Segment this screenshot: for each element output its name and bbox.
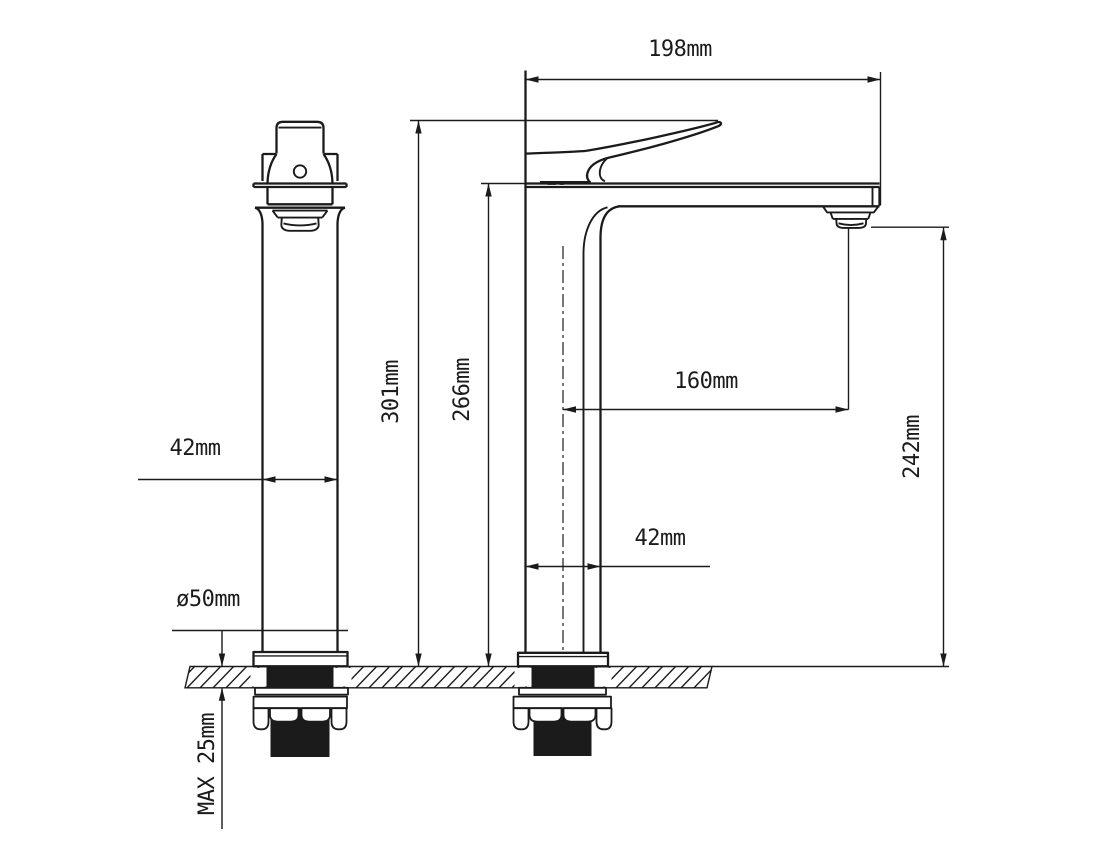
dimension-outlet-height: 242mm	[712, 227, 949, 666]
handle-knob-outline	[277, 122, 324, 154]
dim-label-42mm-front: 42mm	[635, 526, 686, 551]
mounting-nut-band-side	[254, 697, 348, 709]
nut-facet-b-side	[302, 708, 331, 721]
dim-label-50mm: ø50mm	[176, 587, 240, 612]
washer-side	[255, 688, 348, 695]
dimension-body-width-front: 42mm	[526, 526, 711, 570]
mounting-shank-front	[532, 667, 595, 688]
hatch-line	[171, 663, 198, 691]
nut-corner-left-side	[254, 708, 269, 729]
dimension-max-mounting-thickness: MAX 25mm	[195, 631, 225, 830]
countertop-section	[158, 663, 744, 691]
dim-label-160mm: 160mm	[674, 369, 738, 394]
washer-front	[519, 688, 606, 695]
nut-facet-a-front	[530, 708, 562, 721]
technical-drawing-svg: 198mm 301mm 266mm 242mm	[0, 0, 1095, 848]
left-view-side-profile	[254, 122, 349, 757]
mounting-shank-side	[267, 667, 334, 688]
dim-label-242mm: 242mm	[900, 415, 925, 479]
dimension-overall-height: 301mm	[379, 121, 718, 667]
aerator-tip-inner-arc	[839, 223, 864, 225]
cartridge-collar	[268, 187, 333, 204]
handle-indicator-dot	[294, 165, 306, 177]
dimension-spout-reach: 160mm	[563, 229, 849, 413]
aerator-ring-inner-arc-side	[284, 223, 317, 225]
nut-facet-b-front	[564, 708, 596, 721]
handle-cap-top	[526, 151, 587, 154]
nut-corner-right-side	[332, 708, 347, 729]
base-flange-side	[254, 652, 348, 666]
dimension-body-height: 266mm	[450, 184, 492, 667]
hatch-line	[158, 663, 185, 691]
base-flange-front	[518, 653, 608, 667]
column-right-edge-fillet	[601, 206, 620, 652]
handle-lever-neck	[600, 158, 607, 181]
aerator-steps	[823, 206, 879, 219]
dim-label-266mm: 266mm	[450, 358, 475, 422]
spout-end-detail	[273, 211, 328, 218]
body-column-side	[255, 208, 345, 652]
dim-label-42mm-side: 42mm	[170, 436, 221, 461]
handle-base-flare	[268, 154, 333, 183]
mounting-nut-band-front	[514, 697, 612, 709]
handle-lever-blade	[586, 122, 721, 183]
body-brim-band	[254, 184, 347, 188]
nut-facet-a-side	[270, 708, 299, 721]
dim-label-301mm: 301mm	[379, 360, 404, 424]
right-view-front-profile	[481, 71, 880, 757]
nut-corner-left-front	[514, 708, 529, 729]
dimension-body-width-side: 42mm	[138, 436, 338, 483]
dim-label-198mm: 198mm	[648, 37, 712, 62]
column-inner-highlight	[584, 207, 608, 652]
nut-corner-right-front	[597, 708, 612, 729]
drawing-canvas: 198mm 301mm 266mm 242mm	[0, 0, 1095, 848]
dimension-base-diameter: ø50mm	[172, 587, 348, 631]
dim-label-max-25mm: MAX 25mm	[195, 713, 220, 815]
